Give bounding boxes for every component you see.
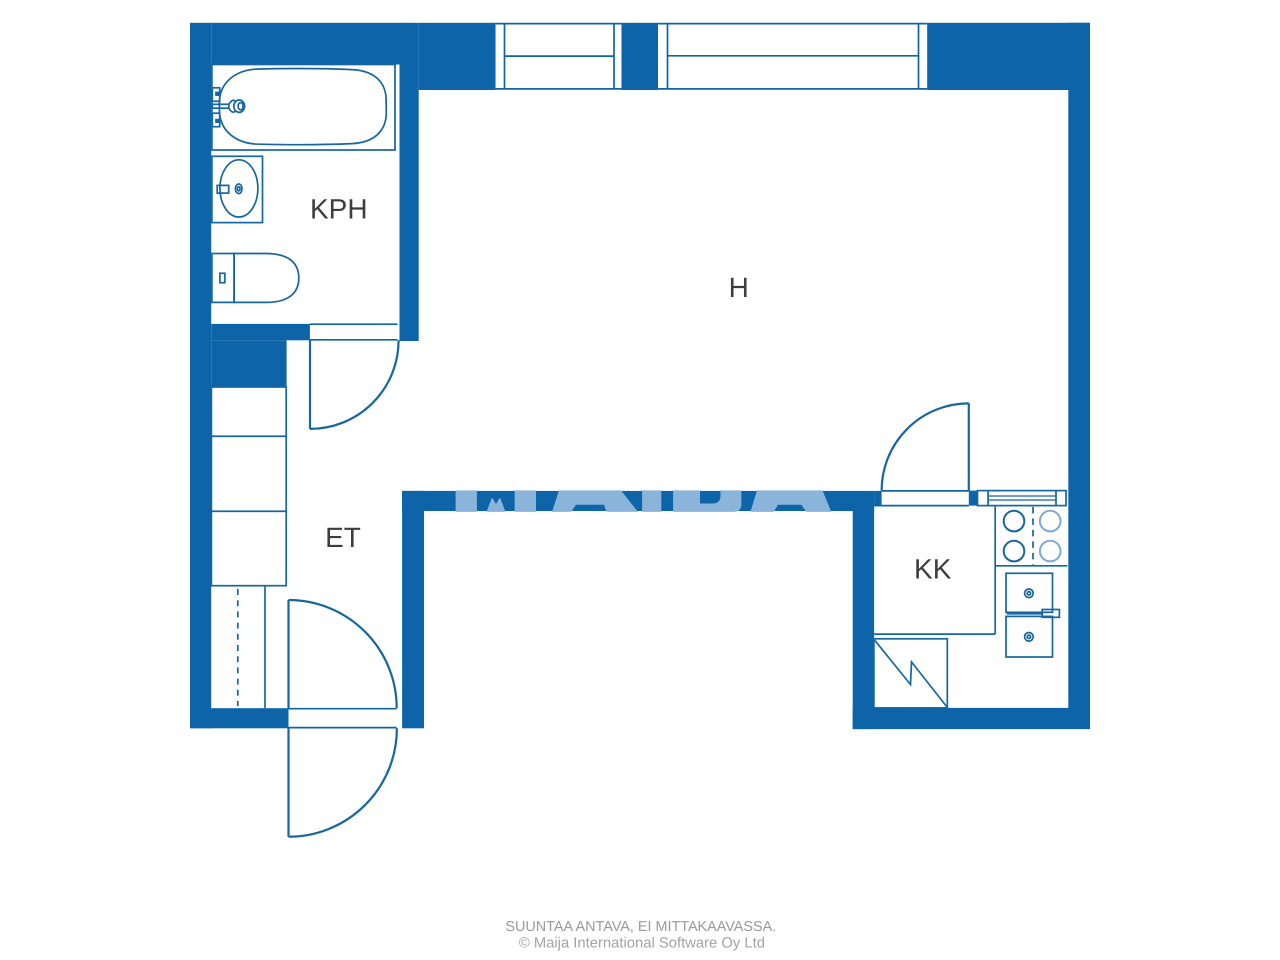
svg-text:SUUNTAA ANTAVA, EI MITTAKAAVAS: SUUNTAA ANTAVA, EI MITTAKAAVASSA. — [505, 919, 776, 935]
svg-text:KPH: KPH — [310, 194, 368, 225]
svg-text:© Maija International Software: © Maija International Software Oy Ltd — [519, 936, 765, 952]
svg-text:KK: KK — [914, 553, 952, 584]
svg-text:H: H — [729, 272, 749, 303]
svg-text:ET: ET — [325, 522, 361, 553]
